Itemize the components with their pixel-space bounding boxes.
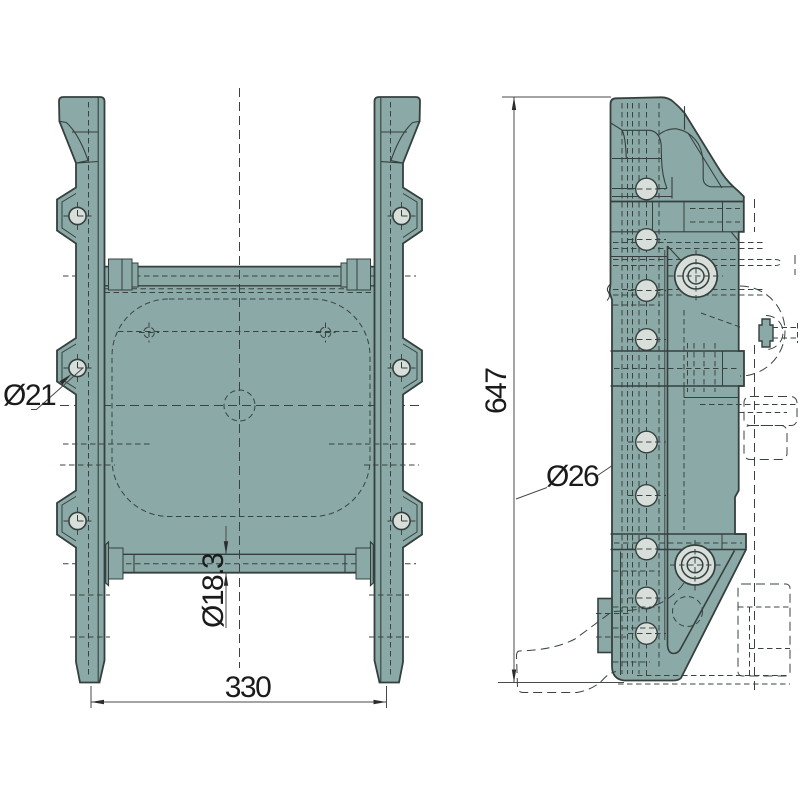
svg-text:Ø26: Ø26 — [546, 460, 599, 493]
svg-text:Ø21: Ø21 — [3, 379, 56, 412]
svg-text:647: 647 — [480, 368, 513, 414]
svg-text:Ø18.3: Ø18.3 — [197, 553, 230, 628]
svg-text:330: 330 — [225, 671, 271, 704]
